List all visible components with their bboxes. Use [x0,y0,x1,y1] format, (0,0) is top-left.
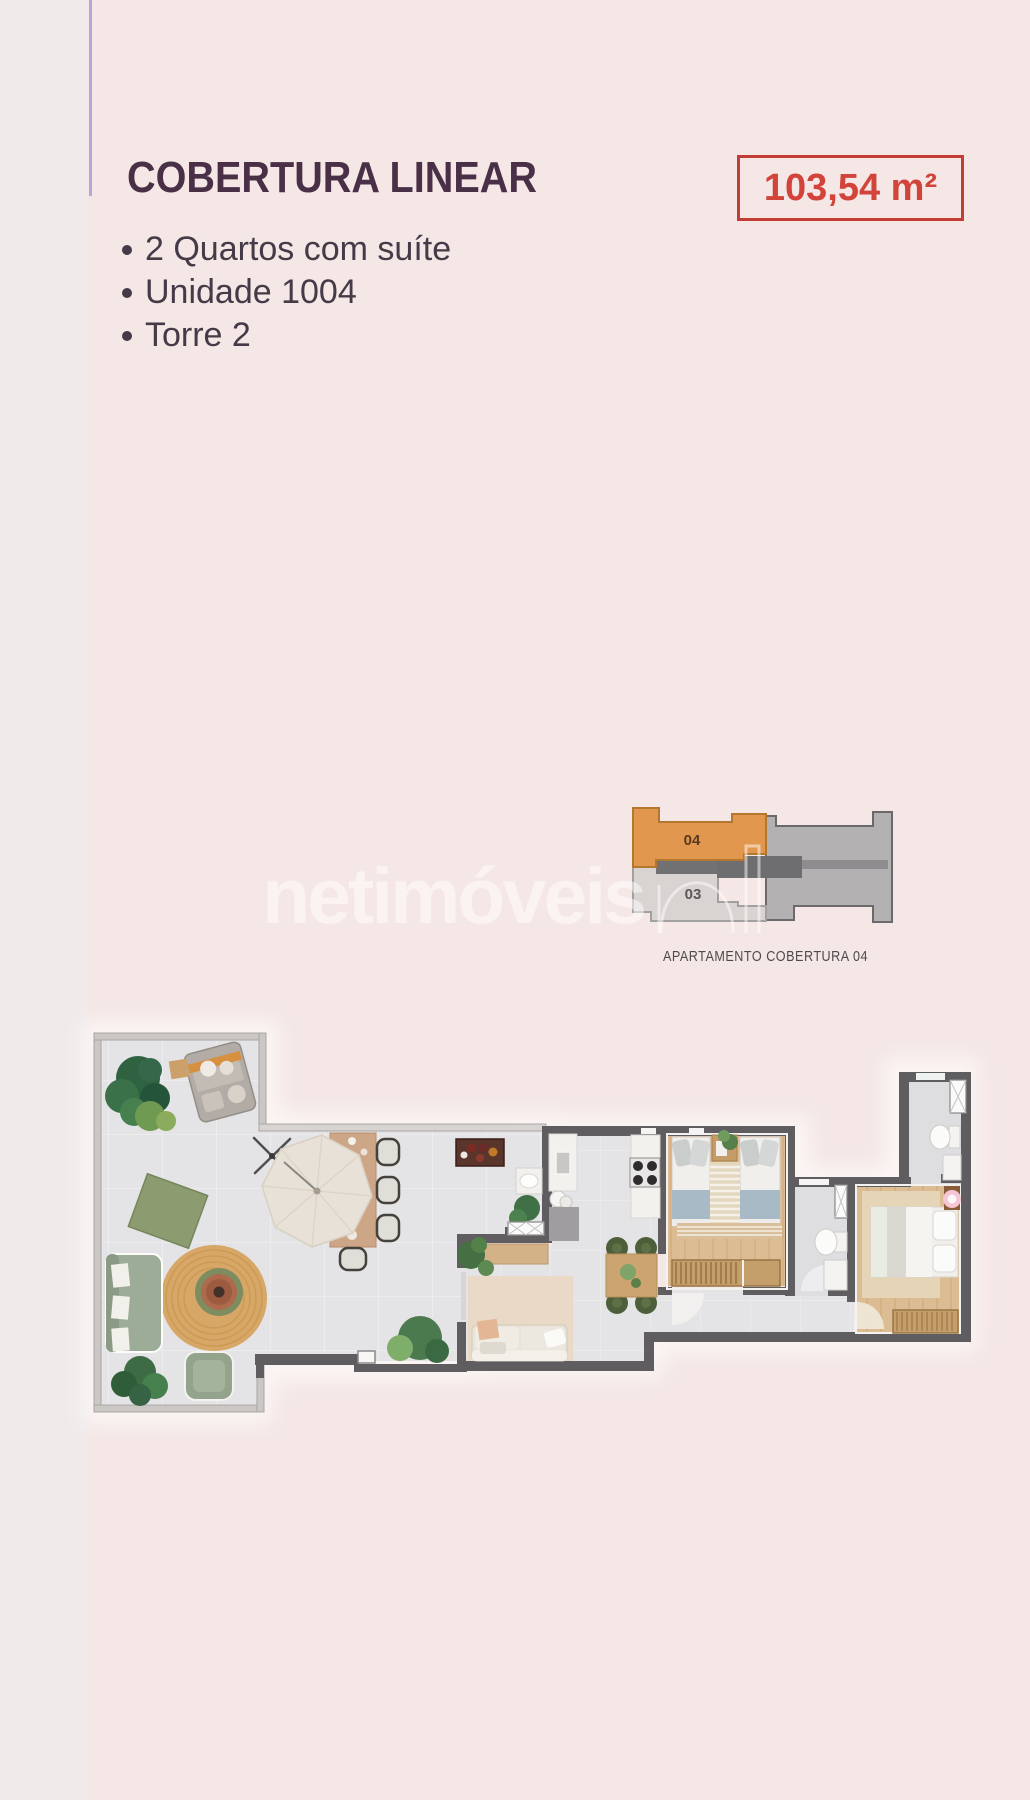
svg-text:netimóveis: netimóveis [262,851,646,940]
svg-text:04: 04 [684,832,701,849]
svg-text:03: 03 [685,886,702,903]
svg-text:APARTAMENTO COBERTURA 04: APARTAMENTO COBERTURA 04 [663,948,868,965]
